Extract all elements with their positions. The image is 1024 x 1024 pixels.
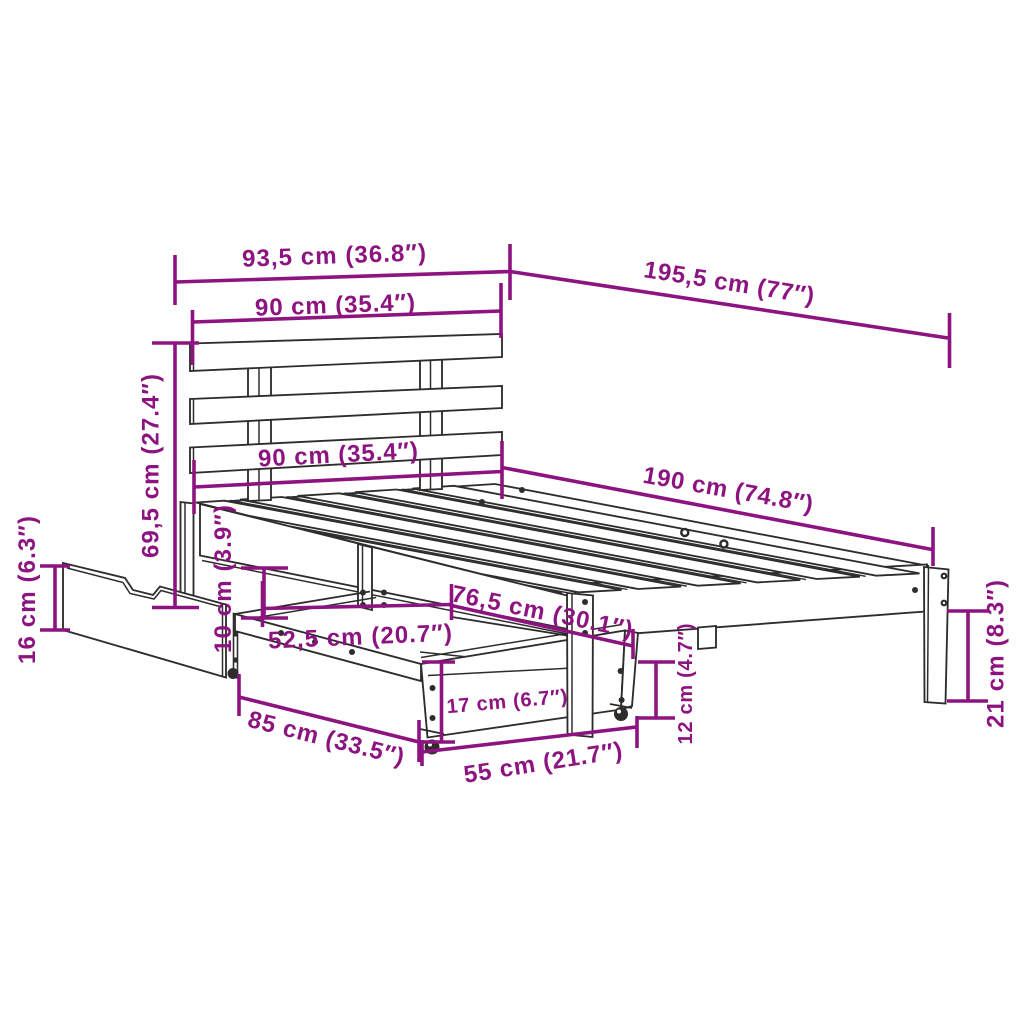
- svg-text:21 cm (8.3″): 21 cm (8.3″): [983, 580, 1010, 728]
- svg-text:12 cm (4.7″): 12 cm (4.7″): [675, 624, 697, 745]
- svg-text:16 cm (6.3″): 16 cm (6.3″): [14, 516, 41, 664]
- svg-text:10 cm (3.9″): 10 cm (3.9″): [210, 505, 237, 653]
- svg-text:69,5 cm (27.4″): 69,5 cm (27.4″): [138, 374, 165, 558]
- svg-text:90 cm (35.4″): 90 cm (35.4″): [255, 289, 416, 322]
